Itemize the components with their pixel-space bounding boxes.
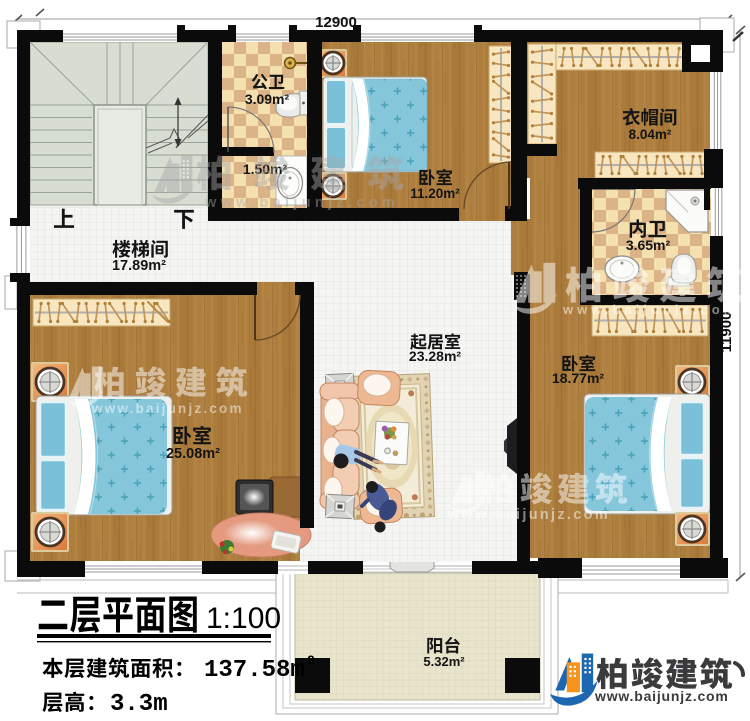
svg-text:www.baijunjz.com: www.baijunjz.com bbox=[447, 507, 610, 523]
svg-text:17.89m²: 17.89m² bbox=[112, 258, 166, 274]
svg-text:3.65m²: 3.65m² bbox=[626, 237, 671, 253]
svg-text:18.77m²: 18.77m² bbox=[552, 370, 604, 386]
svg-text:25.08m²: 25.08m² bbox=[166, 446, 220, 462]
svg-text:www.baijunjz.com: www.baijunjz.com bbox=[91, 401, 244, 416]
svg-text:www.baijunjz.com: www.baijunjz.com bbox=[204, 195, 399, 211]
svg-text:11.20m²: 11.20m² bbox=[410, 186, 460, 201]
svg-text:www.baijunjz.com: www.baijunjz.com bbox=[594, 688, 729, 704]
svg-text:23.28m²: 23.28m² bbox=[409, 348, 461, 364]
svg-text:www.baijunjz.com: www.baijunjz.com bbox=[562, 302, 739, 317]
svg-text:12900: 12900 bbox=[315, 14, 357, 31]
svg-text:3.09m²: 3.09m² bbox=[245, 91, 290, 107]
svg-text:3.3m: 3.3m bbox=[110, 691, 168, 718]
svg-text:1:100: 1:100 bbox=[206, 602, 281, 635]
svg-text:137.58m: 137.58m bbox=[204, 657, 305, 684]
svg-text:5.32m²: 5.32m² bbox=[423, 654, 465, 669]
svg-text:2: 2 bbox=[307, 653, 315, 668]
svg-text:8.04m²: 8.04m² bbox=[629, 127, 672, 142]
